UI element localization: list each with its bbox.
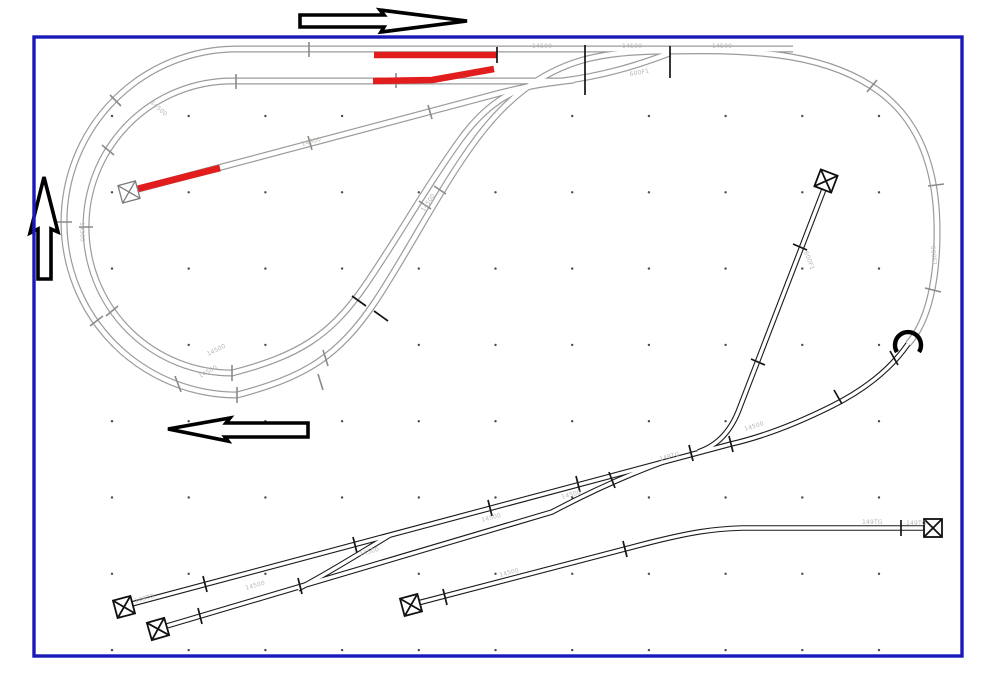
grid-dot — [188, 267, 190, 269]
grid-dot — [648, 191, 650, 193]
buffer-stop[interactable] — [113, 596, 135, 618]
grid-dot — [494, 191, 496, 193]
grid-dot — [111, 573, 113, 575]
grid-dot — [571, 420, 573, 422]
grid-dot — [571, 267, 573, 269]
grid-dot — [801, 344, 803, 346]
grid-dot — [188, 573, 190, 575]
track-plan-canvas: 145001450014500600F1600F1149TG1450014500… — [0, 0, 991, 692]
track-part-label: 14500 — [481, 512, 502, 524]
grid-dots — [111, 115, 880, 652]
track-part-label: 149TG — [862, 519, 883, 526]
track-part-label: 14500 — [532, 43, 552, 50]
rail-joint-ticks-dark — [198, 45, 901, 624]
grid-dot — [341, 115, 343, 117]
grid-dot — [418, 191, 420, 193]
grid-dot — [724, 420, 726, 422]
grid-dot — [724, 649, 726, 651]
grid-dot — [188, 649, 190, 651]
grid-dot — [418, 496, 420, 498]
grid-dot — [111, 649, 113, 651]
grid-dot — [878, 115, 880, 117]
grid-dot — [264, 344, 266, 346]
grid-dot — [494, 649, 496, 651]
grid-dot — [341, 191, 343, 193]
track-part-label: 14500 — [78, 222, 86, 242]
grid-dot — [801, 496, 803, 498]
grid-dot — [111, 496, 113, 498]
track-part-label: 14500 — [245, 580, 266, 592]
grid-dot — [648, 649, 650, 651]
grid-dot — [418, 649, 420, 651]
yard-lead-core — [128, 344, 908, 605]
right-end-curve-core — [676, 51, 937, 344]
grid-dot — [878, 267, 880, 269]
grid-dot — [648, 420, 650, 422]
grid-dot — [801, 573, 803, 575]
grid-dot — [418, 344, 420, 346]
grid-dot — [724, 267, 726, 269]
yard-lead-track[interactable] — [128, 344, 908, 605]
grid-dot — [341, 420, 343, 422]
grid-dot — [648, 115, 650, 117]
track-part-label: 14500 — [712, 43, 732, 50]
outer-loop-track-core — [64, 49, 793, 395]
grid-dot — [264, 649, 266, 651]
grid-dot — [724, 344, 726, 346]
grid-dot — [341, 496, 343, 498]
northeast-siding-track[interactable] — [698, 184, 826, 452]
grid-dot — [264, 191, 266, 193]
buffer-stop[interactable] — [400, 594, 422, 616]
grid-dot — [111, 191, 113, 193]
grid-dot — [648, 573, 650, 575]
grid-dot — [188, 344, 190, 346]
grid-dot — [801, 191, 803, 193]
grid-dot — [188, 115, 190, 117]
grid-dot — [111, 115, 113, 117]
outer-loop-track[interactable] — [64, 49, 793, 395]
track-part-label: 14500 — [744, 420, 765, 433]
grid-dot — [111, 267, 113, 269]
grid-dot — [571, 573, 573, 575]
track-part-label: 600F1 — [802, 250, 816, 271]
grid-dot — [878, 344, 880, 346]
grid-dot — [188, 496, 190, 498]
grid-dot — [418, 573, 420, 575]
grid-dot — [878, 191, 880, 193]
grid-dot — [648, 496, 650, 498]
grid-dot — [494, 496, 496, 498]
grid-dot — [648, 344, 650, 346]
grid-dot — [724, 191, 726, 193]
grid-dot — [571, 344, 573, 346]
buffer-stop[interactable] — [814, 169, 837, 192]
grid-dot — [801, 115, 803, 117]
grid-dot — [341, 267, 343, 269]
grid-dot — [801, 267, 803, 269]
direction-arrow-right-icon[interactable] — [300, 10, 467, 32]
grid-dot — [571, 649, 573, 651]
lower-storage-core — [414, 528, 926, 604]
grid-dot — [264, 115, 266, 117]
plan-drawing: 145001450014500600F1600F1149TG1450014500… — [0, 0, 991, 692]
highlight-siding-stub[interactable] — [137, 168, 220, 189]
grid-dot — [724, 573, 726, 575]
northeast-siding-core — [698, 184, 826, 452]
grid-dot — [494, 267, 496, 269]
grid-dot — [494, 344, 496, 346]
buffer-stops[interactable] — [113, 169, 942, 640]
grid-dot — [494, 573, 496, 575]
grid-dot — [264, 573, 266, 575]
grid-dot — [878, 496, 880, 498]
grid-dot — [188, 420, 190, 422]
grid-dot — [878, 573, 880, 575]
grid-dot — [878, 649, 880, 651]
right-end-curve-track[interactable] — [676, 51, 937, 344]
track-part-label: 14500 — [359, 546, 380, 558]
grid-dot — [724, 496, 726, 498]
grid-dot — [264, 496, 266, 498]
grid-dot — [341, 649, 343, 651]
mainline-loop-tracks[interactable] — [64, 49, 937, 395]
grid-dot — [878, 420, 880, 422]
grid-dot — [648, 267, 650, 269]
buffer-stop[interactable] — [147, 618, 169, 640]
grid-dot — [111, 420, 113, 422]
grid-dot — [571, 191, 573, 193]
grid-dot — [418, 420, 420, 422]
grid-dot — [418, 267, 420, 269]
track-part-label: 600F1 — [929, 246, 938, 266]
layout-border — [34, 37, 962, 656]
buffer-stop[interactable] — [118, 181, 140, 203]
grid-dot — [724, 115, 726, 117]
track-part-label: 14500 — [622, 43, 642, 50]
grid-dot — [264, 267, 266, 269]
track-part-label: 149TG — [906, 520, 927, 527]
track-part-label: 14500 — [206, 343, 227, 358]
grid-dot — [494, 420, 496, 422]
track-part-labels: 145001450014500600F1600F1149TG1450014500… — [78, 43, 938, 605]
grid-dot — [571, 115, 573, 117]
grid-dot — [188, 191, 190, 193]
grid-dot — [801, 649, 803, 651]
